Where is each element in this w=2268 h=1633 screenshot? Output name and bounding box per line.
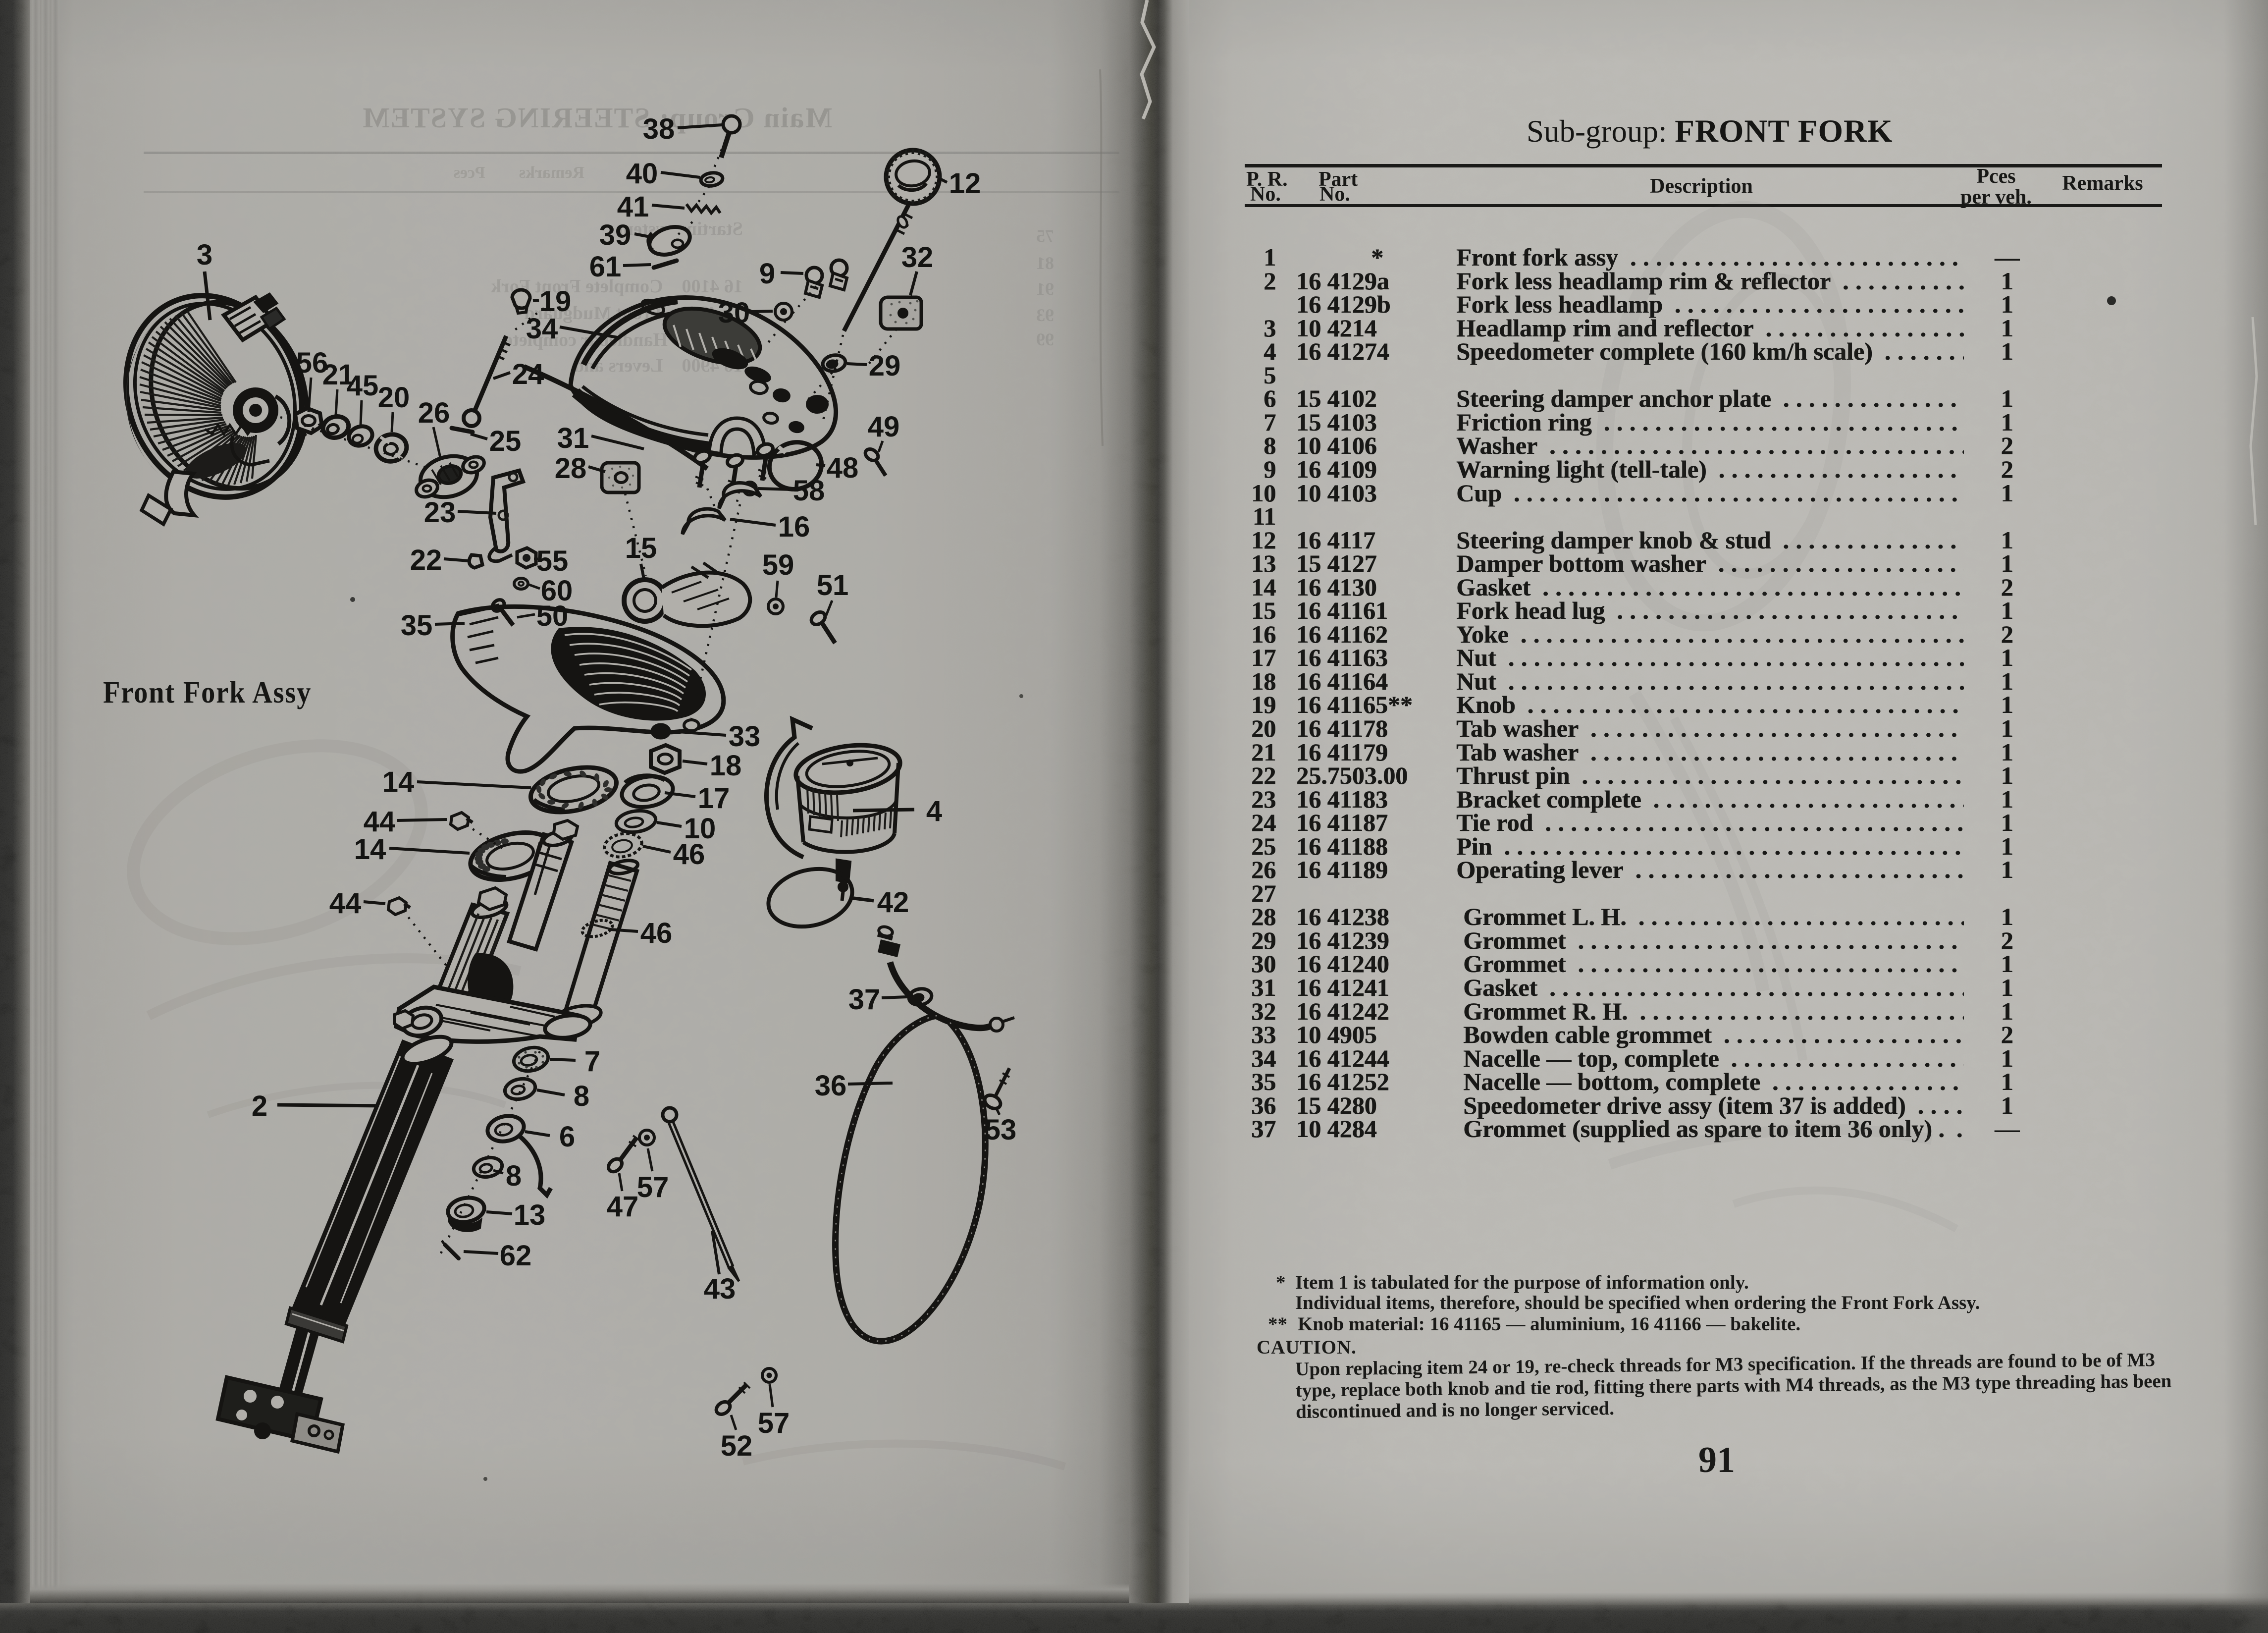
svg-text:34: 34 [526, 313, 558, 345]
svg-text:53: 53 [985, 1114, 1017, 1146]
svg-text:14: 14 [382, 766, 415, 798]
svg-text:57: 57 [758, 1407, 790, 1439]
svg-text:13: 13 [514, 1199, 546, 1231]
svg-text:33: 33 [729, 720, 761, 753]
svg-text:7: 7 [584, 1045, 600, 1078]
svg-text:58: 58 [793, 475, 825, 507]
svg-text:50: 50 [536, 600, 569, 632]
svg-text:12: 12 [949, 167, 981, 200]
svg-text:30: 30 [718, 297, 750, 329]
svg-text:9: 9 [759, 258, 775, 290]
svg-text:14: 14 [354, 833, 386, 866]
svg-text:31: 31 [557, 422, 589, 454]
svg-text:8: 8 [574, 1080, 589, 1112]
svg-text:62: 62 [500, 1240, 532, 1272]
svg-text:46: 46 [673, 838, 705, 871]
svg-text:32: 32 [901, 241, 934, 273]
svg-text:48: 48 [827, 452, 859, 484]
svg-text:26: 26 [418, 397, 450, 429]
svg-text:28: 28 [555, 452, 587, 485]
svg-text:22: 22 [410, 544, 442, 576]
svg-text:35: 35 [401, 609, 433, 642]
svg-text:57: 57 [637, 1171, 669, 1203]
svg-text:4: 4 [926, 795, 942, 827]
svg-text:37: 37 [848, 983, 881, 1016]
svg-text:39: 39 [599, 219, 632, 251]
svg-text:18: 18 [710, 750, 742, 782]
svg-text:23: 23 [424, 496, 456, 529]
svg-text:61: 61 [589, 251, 622, 283]
svg-text:42: 42 [877, 886, 909, 919]
svg-text:47: 47 [607, 1191, 639, 1223]
svg-text:46: 46 [640, 917, 673, 949]
svg-text:51: 51 [817, 569, 849, 601]
svg-text:16: 16 [778, 511, 810, 543]
svg-text:55: 55 [536, 545, 569, 577]
svg-text:41: 41 [617, 191, 649, 223]
svg-text:45: 45 [347, 370, 379, 402]
svg-text:59: 59 [762, 549, 794, 581]
svg-text:2: 2 [252, 1090, 267, 1122]
svg-text:36: 36 [815, 1070, 847, 1102]
svg-text:29: 29 [869, 350, 901, 382]
svg-text:38: 38 [643, 113, 675, 145]
svg-text:52: 52 [721, 1430, 753, 1462]
svg-text:3: 3 [197, 239, 212, 271]
svg-text:24: 24 [512, 358, 544, 390]
svg-text:15: 15 [625, 532, 657, 564]
svg-text:6: 6 [559, 1121, 575, 1153]
svg-text:20: 20 [378, 381, 410, 414]
svg-text:17: 17 [698, 782, 730, 815]
svg-text:8: 8 [506, 1160, 522, 1192]
svg-text:25: 25 [489, 425, 522, 457]
svg-text:43: 43 [704, 1273, 736, 1305]
svg-text:40: 40 [626, 158, 658, 190]
svg-text:44: 44 [329, 887, 362, 920]
svg-text:49: 49 [868, 411, 900, 443]
